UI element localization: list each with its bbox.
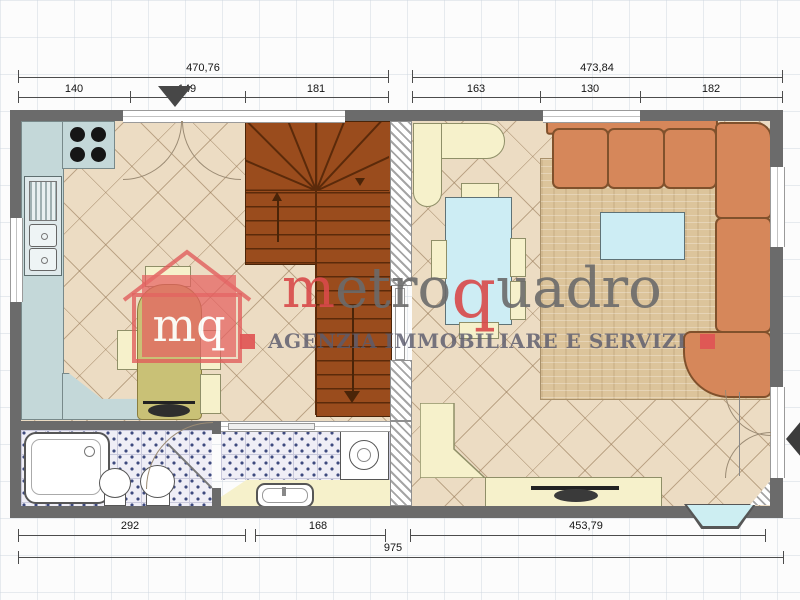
brand-etro: etro [335,256,451,321]
vanity-sink [256,483,314,508]
brand-tagline: AGENZIA IMMOBILIARE E SERVIZI [240,329,715,353]
drainboard [29,181,57,221]
dim-tick [18,70,19,83]
dim-line [412,77,782,78]
dim-tick [640,91,641,103]
dim-seg-label: 168 [309,521,327,532]
logo-mq-text: mq [152,298,225,352]
bay-step [687,505,753,526]
sofa-cushion [715,217,772,333]
dim-tick [388,91,389,103]
sink-basin [29,224,57,247]
brand-uadro: uadro [496,256,662,321]
dim-top-right-total-label: 473,84 [580,63,614,74]
bidet [99,468,131,498]
stairs-up-arrow-icon [277,200,279,242]
tv-cabinet [420,403,485,478]
wall-bottom [10,506,783,518]
red-square-icon [700,334,715,349]
washing-machine [340,431,389,480]
tv-icon [554,489,598,502]
burner-icon [70,127,85,142]
sofa-corner-cushion [715,122,772,219]
sofa-cushion [607,128,665,189]
dim-top-left-total-label: 470,76 [186,63,220,74]
dim-tick [783,551,784,564]
faucet-icon [282,487,286,496]
dim-line [18,557,783,558]
brand-q: q [451,252,496,334]
kitchen-sink [24,176,62,276]
dim-line [412,97,782,98]
wall-left [10,110,21,518]
dim-line [255,535,385,536]
window [543,110,640,123]
brand-m: m [282,256,335,321]
kitchen-chair [200,374,221,414]
dim-seg-label: 453,79 [569,521,603,532]
dim-tick [18,551,19,564]
dim-tick [412,70,413,83]
dim-tick [782,70,783,83]
window [10,218,23,302]
north-triangle-marker [158,86,192,107]
dim-tick [255,529,256,542]
door-leaf [228,423,315,430]
sofa-cushion [552,128,609,189]
shower-tray [24,432,110,504]
entrance-opening [770,387,785,478]
wall-bath-divider [212,421,221,434]
wall-bath-divider [212,488,221,506]
hatched-wall [390,360,412,421]
dim-line [410,535,765,536]
dim-seg-label: 130 [581,84,599,95]
window [770,167,785,247]
agency-logo-icon: mq [116,245,258,367]
dim-tick [385,529,386,542]
dim-tick [18,529,19,542]
dim-line [18,77,388,78]
sink-basin [29,248,57,271]
dim-tick [765,529,766,542]
cooktop-on-table [148,404,190,417]
tagline-text: AGENZIA IMMOBILIARE E SERVIZI [268,329,687,353]
dim-line [18,97,388,98]
dim-tick [18,91,19,103]
stove [62,121,115,169]
dim-total-label: 975 [384,543,402,554]
burner-icon [70,147,85,162]
stairs-winders [246,122,389,191]
dim-tick [245,91,246,103]
entrance-arrow-icon [786,421,800,457]
burner-icon [91,147,106,162]
burner-icon [91,127,106,142]
door-leaf [739,392,740,476]
dim-tick [245,529,246,542]
dim-tick [412,91,413,103]
corner-bench [413,123,442,207]
dim-seg-label: 292 [121,521,139,532]
washer-door-icon [357,448,371,462]
hatched-wall [390,421,412,506]
stairs-arrow-icon [355,178,365,186]
dim-seg-label: 181 [307,84,325,95]
dim-tick [540,91,541,103]
dim-tick [410,529,411,542]
dim-line [18,535,245,536]
dim-tick [388,70,389,83]
dim-seg-label: 182 [702,84,720,95]
dim-seg-label: 140 [65,84,83,95]
stairs-up-arrow-icon [272,192,282,201]
sofa-cushion [663,128,717,189]
stairs-down-arrow-icon [344,391,360,403]
floor-plan: 470,76 473,84 140 149 181 163 130 182 [0,0,800,600]
red-square-icon [240,334,255,349]
dim-tick [782,91,783,103]
shower-drain-icon [84,446,95,457]
dim-tick [130,91,131,103]
dim-seg-label: 163 [467,84,485,95]
brand-wordmark: metroquadro [282,252,662,334]
